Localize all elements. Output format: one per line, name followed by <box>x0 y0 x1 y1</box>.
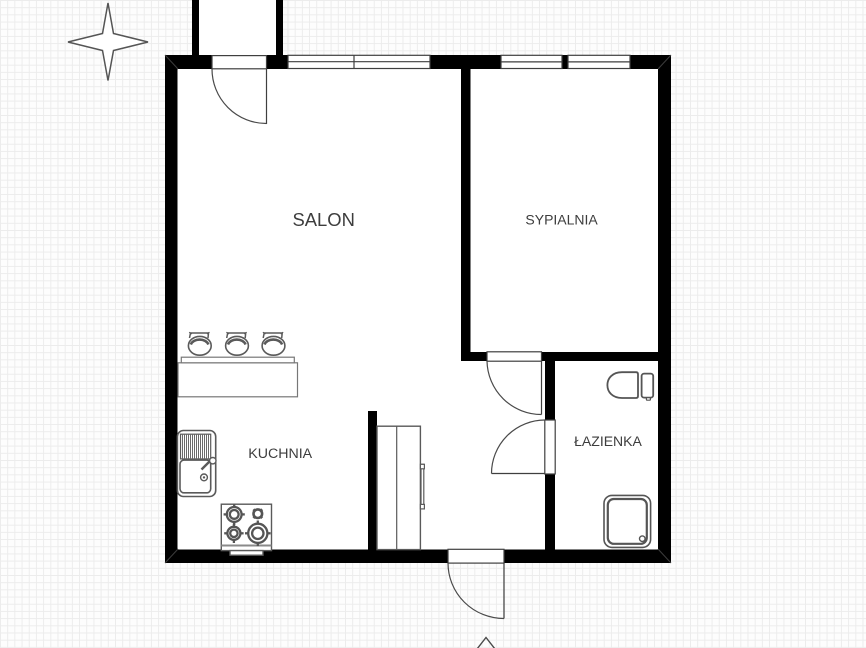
svg-text:SALON: SALON <box>293 209 355 230</box>
svg-text:SYPIALNIA: SYPIALNIA <box>525 211 598 227</box>
svg-text:KUCHNIA: KUCHNIA <box>248 446 312 462</box>
svg-text:ŁAZIENKA: ŁAZIENKA <box>574 433 642 449</box>
